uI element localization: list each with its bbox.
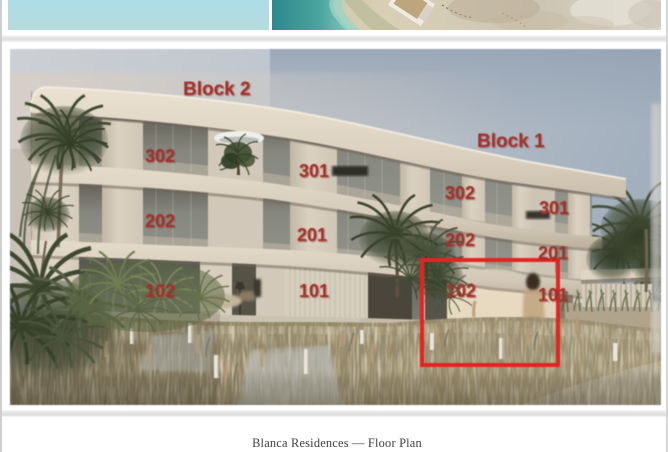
svg-text:301: 301: [299, 161, 329, 181]
svg-text:102: 102: [145, 281, 175, 301]
svg-text:Block 2: Block 2: [183, 79, 251, 100]
svg-text:201: 201: [297, 225, 327, 245]
svg-text:101: 101: [538, 285, 568, 305]
svg-text:302: 302: [445, 183, 475, 203]
svg-text:Block 1: Block 1: [477, 131, 545, 152]
svg-text:102: 102: [446, 281, 476, 301]
svg-text:201: 201: [538, 243, 568, 263]
svg-text:302: 302: [145, 146, 175, 166]
svg-text:301: 301: [539, 198, 569, 218]
svg-text:101: 101: [299, 281, 329, 301]
svg-text:202: 202: [445, 230, 475, 250]
svg-text:202: 202: [145, 211, 175, 231]
